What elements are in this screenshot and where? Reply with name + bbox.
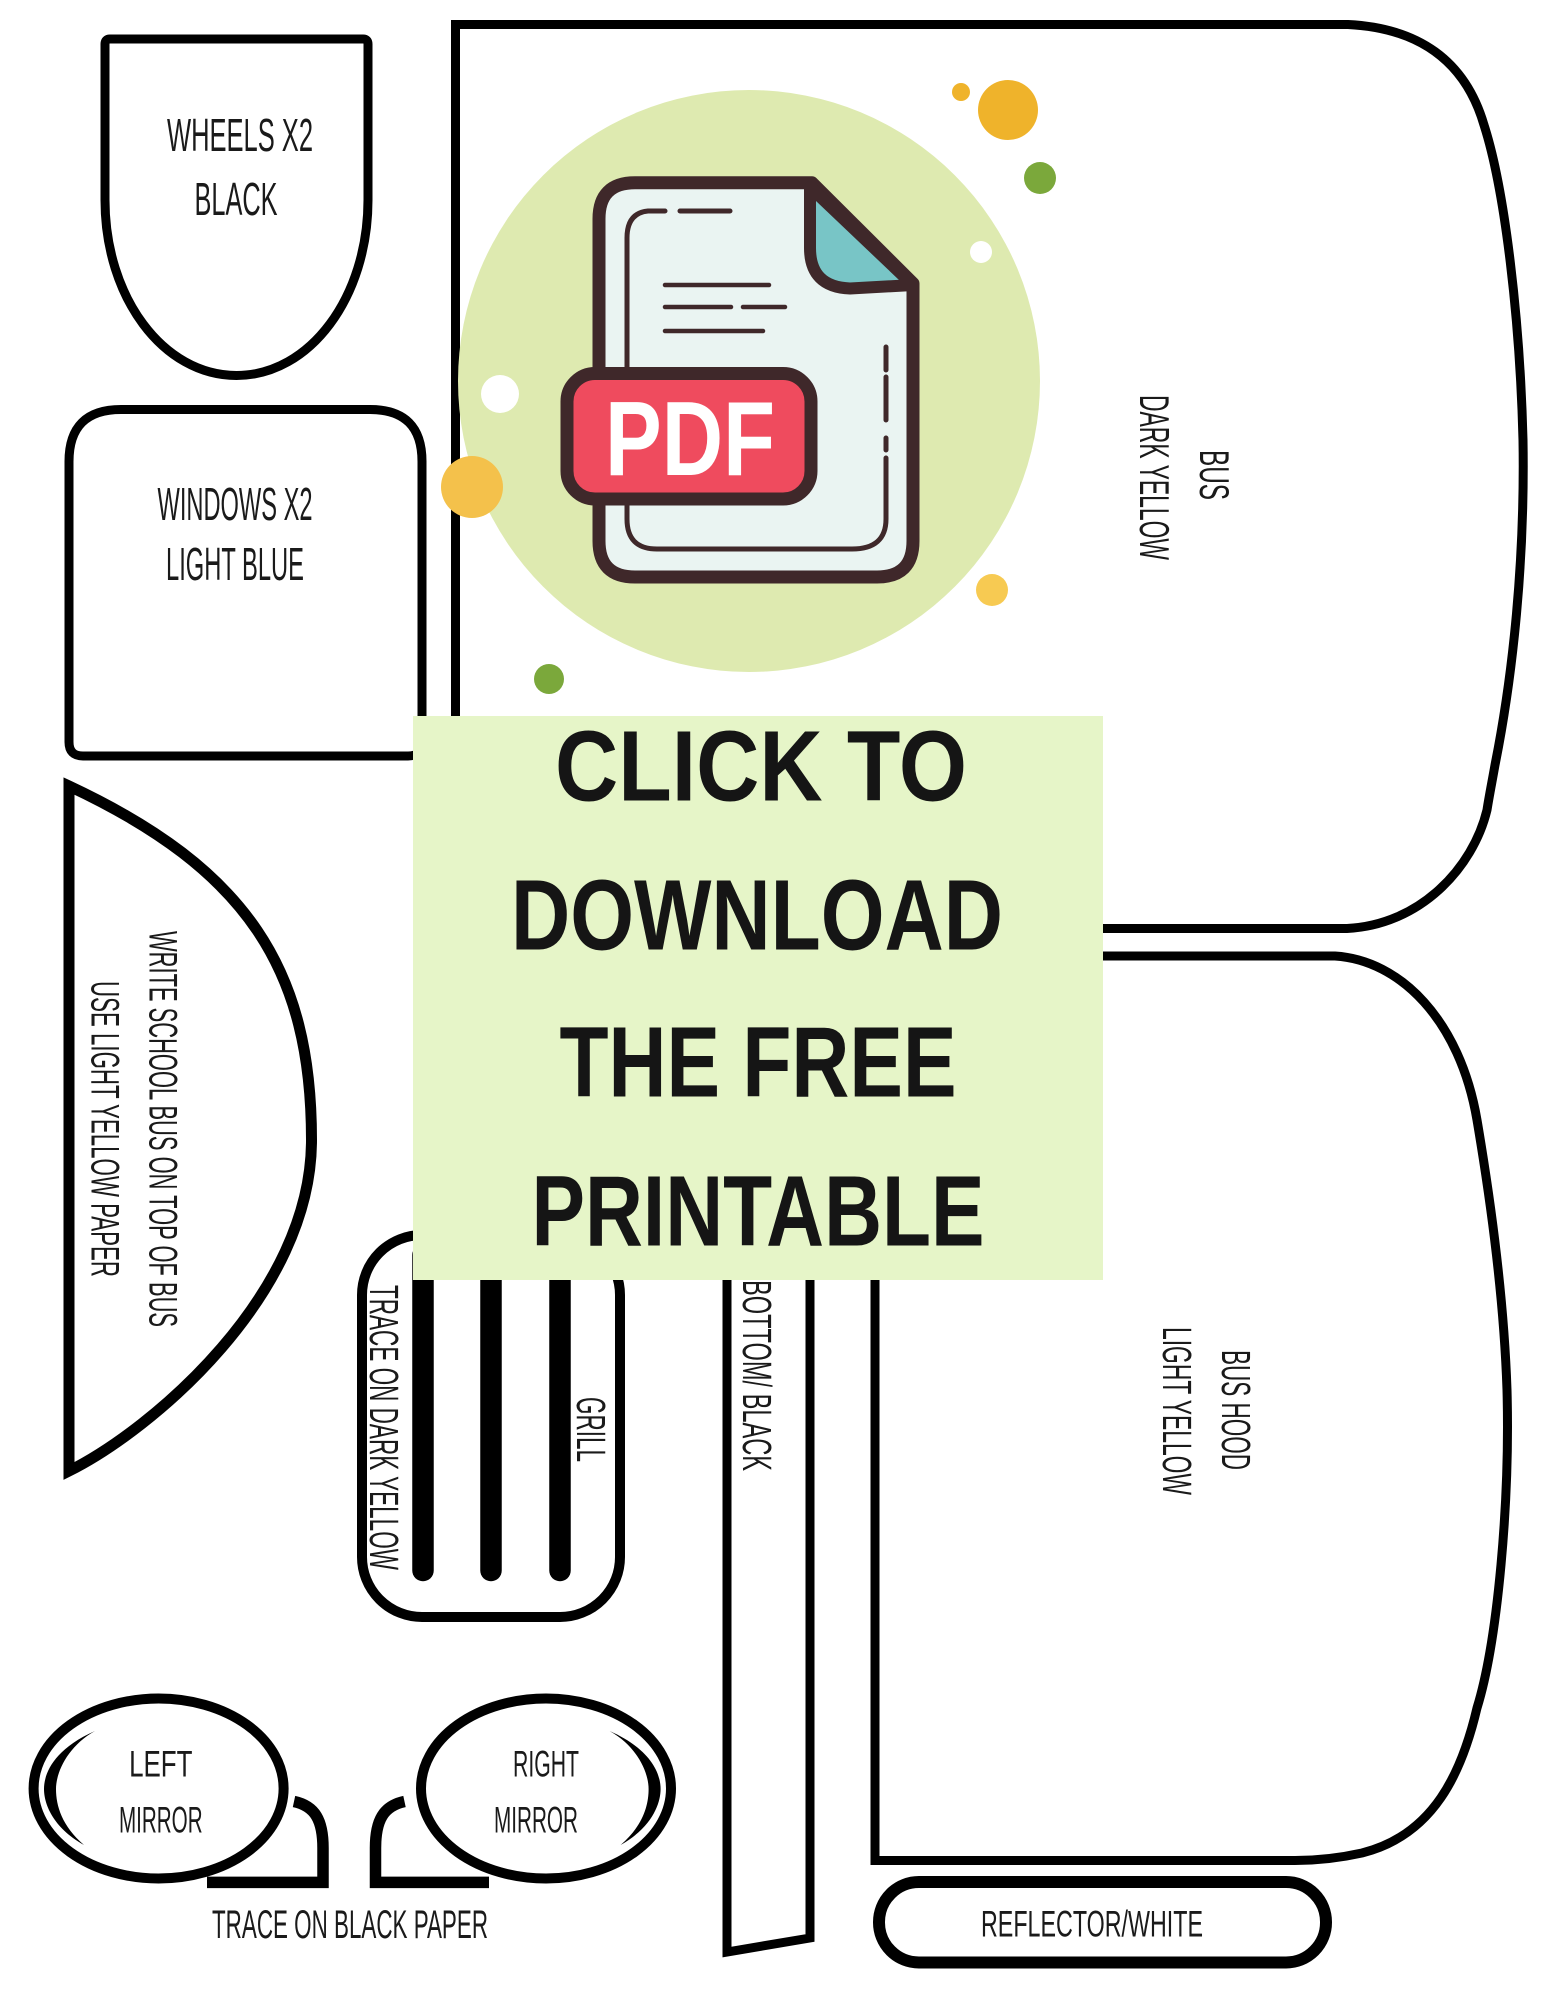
- svg-text:REFLECTOR/WHITE: REFLECTOR/WHITE: [981, 1904, 1203, 1945]
- svg-text:BLACK: BLACK: [195, 173, 278, 225]
- svg-text:BOTTOM/ BLACK: BOTTOM/ BLACK: [734, 1280, 780, 1471]
- svg-text:BUS: BUS: [1191, 450, 1238, 500]
- svg-text:TRACE ON DARK YELLOW: TRACE ON DARK YELLOW: [361, 1285, 407, 1570]
- svg-text:RIGHT: RIGHT: [513, 1742, 579, 1784]
- svg-text:WHEELS X2: WHEELS X2: [167, 109, 313, 161]
- svg-text:CLICK TO: CLICK TO: [555, 711, 967, 823]
- svg-text:GRILL: GRILL: [568, 1397, 614, 1462]
- svg-text:WINDOWS X2: WINDOWS X2: [158, 478, 313, 530]
- svg-text:PRINTABLE: PRINTABLE: [532, 1156, 985, 1268]
- svg-text:MIRROR: MIRROR: [494, 1799, 578, 1841]
- svg-text:DOWNLOAD: DOWNLOAD: [511, 860, 1003, 972]
- svg-text:LIGHT BLUE: LIGHT BLUE: [166, 538, 304, 590]
- svg-text:WRITE SCHOOL BUS ON TOP OF BUS: WRITE SCHOOL BUS ON TOP OF BUS: [141, 931, 185, 1327]
- svg-text:TRACE ON BLACK PAPER: TRACE ON BLACK PAPER: [212, 1903, 488, 1947]
- svg-text:DARK YELLOW: DARK YELLOW: [1131, 395, 1178, 560]
- svg-text:MIRROR: MIRROR: [119, 1799, 203, 1841]
- svg-text:PDF: PDF: [605, 380, 775, 498]
- svg-text:LEFT: LEFT: [129, 1742, 192, 1784]
- svg-text:THE FREE: THE FREE: [560, 1007, 957, 1119]
- svg-text:BUS HOOD: BUS HOOD: [1213, 1350, 1259, 1470]
- svg-text:USE LIGHT YELLOW PAPER: USE LIGHT YELLOW PAPER: [83, 981, 127, 1277]
- svg-text:LIGHT YELLOW: LIGHT YELLOW: [1154, 1327, 1200, 1495]
